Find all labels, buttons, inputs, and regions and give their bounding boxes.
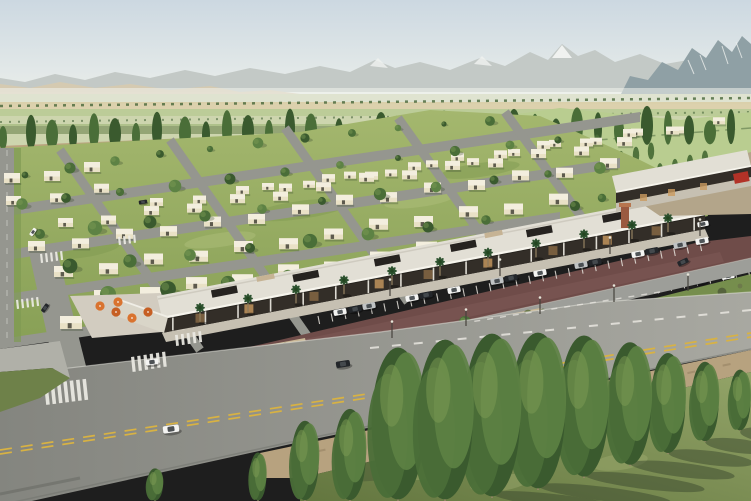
screenshot-aerial-rendering <box>0 0 751 501</box>
aerial-render-canvas <box>0 0 751 501</box>
